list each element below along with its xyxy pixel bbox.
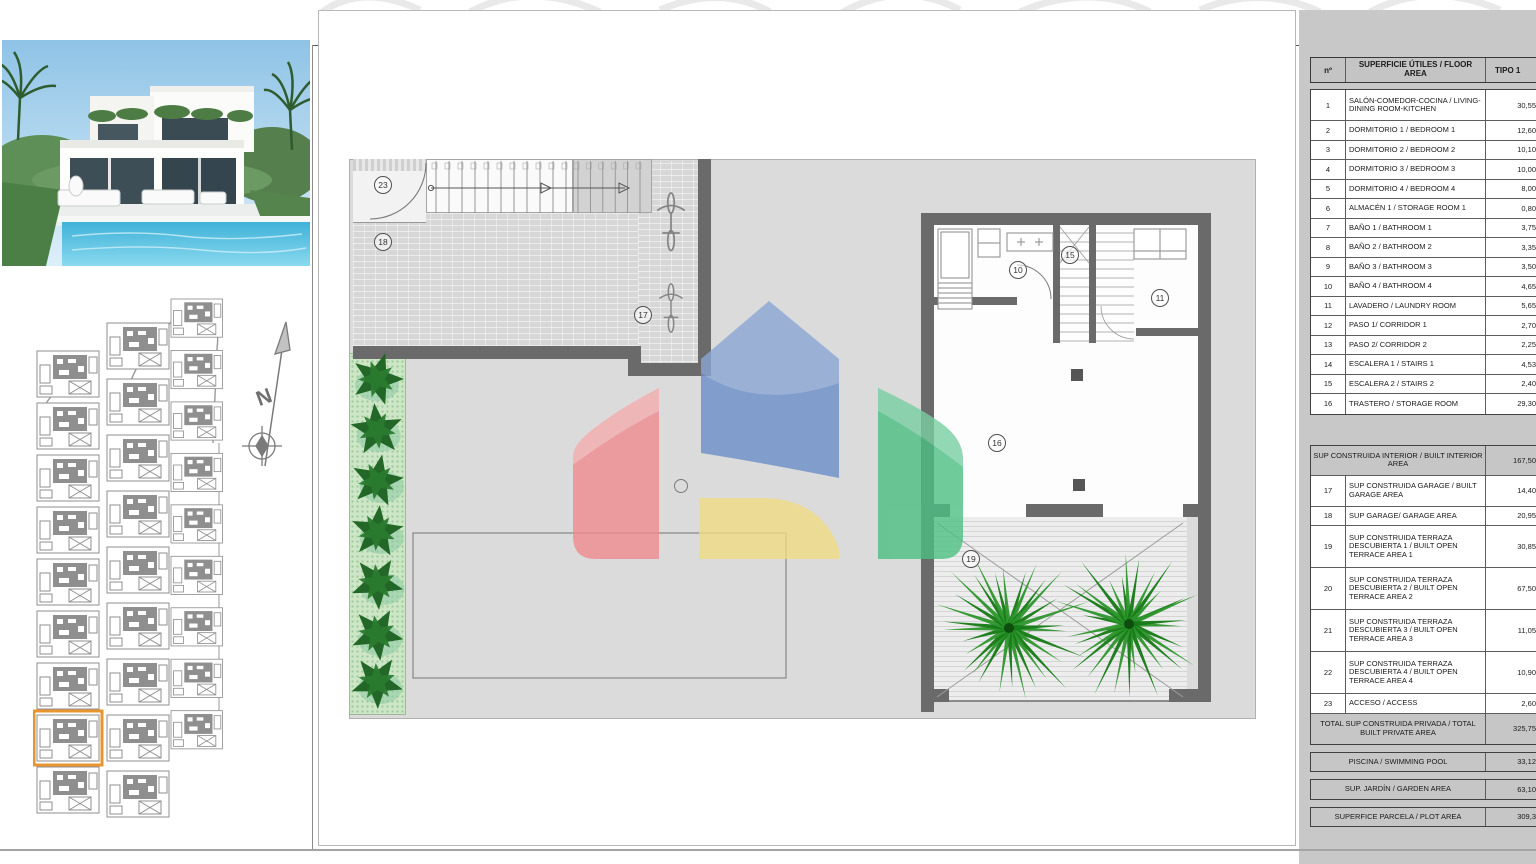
row-label: PASO 1/ CORRIDOR 1 <box>1346 316 1486 335</box>
wall <box>1053 225 1060 343</box>
row-value: 3,35 <box>1486 238 1536 257</box>
row-value: 30,85 <box>1486 526 1536 567</box>
marker-23: 23 <box>374 176 392 194</box>
header-area: SUPERFICIE ÚTILES / FLOOR AREA <box>1346 58 1486 82</box>
row-num: 21 <box>1311 610 1346 651</box>
marker-15: 15 <box>1061 246 1079 264</box>
table-row: 4DORMITORIO 3 / BEDROOM 310,00 <box>1311 160 1536 180</box>
table-row: 17SUP CONSTRUIDA GARAGE / BUILT GARAGE A… <box>1311 476 1536 507</box>
row-value: 10,00 <box>1486 160 1536 179</box>
summary-value: 33,12 <box>1486 753 1536 772</box>
table-row: 5DORMITORIO 4 / BEDROOM 48,00 <box>1311 180 1536 200</box>
wall <box>934 504 950 517</box>
table-row: 11LAVADERO / LAUNDRY ROOM5,65 <box>1311 297 1536 317</box>
row-num: 22 <box>1311 652 1346 693</box>
summary-value: 325,75 <box>1486 714 1536 744</box>
exterior-stairs-upper <box>573 159 652 213</box>
table-gap <box>1310 772 1536 779</box>
row-label: SALÓN-COMEDOR-COCINA / LIVING-DINING ROO… <box>1346 90 1486 120</box>
table-row: 19SUP CONSTRUIDA TERRAZA DESCUBIERTA 1 /… <box>1311 526 1536 568</box>
site-units <box>37 299 222 817</box>
row-value: 12,60 <box>1486 121 1536 140</box>
row-num: 9 <box>1311 258 1346 277</box>
summary-value: 63,10 <box>1486 780 1536 799</box>
marker-18: 18 <box>374 233 392 251</box>
north-arrow: N <box>240 318 300 480</box>
row-value: 20,95 <box>1486 507 1536 526</box>
wall <box>921 517 934 712</box>
summary-row: SUP. JARDÍN / GARDEN AREA63,10 <box>1311 780 1536 799</box>
row-num: 16 <box>1311 394 1346 414</box>
svg-text:N: N <box>253 384 275 411</box>
row-num: 18 <box>1311 507 1346 526</box>
row-num: 14 <box>1311 355 1346 374</box>
row-value: 2,70 <box>1486 316 1536 335</box>
table-block: SUP CONSTRUIDA INTERIOR / BUILT INTERIOR… <box>1310 445 1536 745</box>
table-header: nº SUPERFICIE ÚTILES / FLOOR AREA TIPO 1 <box>1310 57 1536 83</box>
row-value: 8,00 <box>1486 180 1536 199</box>
row-label: ESCALERA 1 / STAIRS 1 <box>1346 355 1486 374</box>
wall <box>638 363 704 376</box>
row-label: SUP GARAGE/ GARAGE AREA <box>1346 507 1486 526</box>
table-row: 22SUP CONSTRUIDA TERRAZA DESCUBIERTA 4 /… <box>1311 652 1536 694</box>
table-row: 14ESCALERA 1 / STAIRS 14,53 <box>1311 355 1536 375</box>
sheet-bottom-rule <box>0 849 1536 851</box>
row-label: DORMITORIO 3 / BEDROOM 3 <box>1346 160 1486 179</box>
table-row: 23ACCESO / ACCESS2,60 <box>1311 694 1536 714</box>
area-schedule-table: nº SUPERFICIE ÚTILES / FLOOR AREA TIPO 1… <box>1310 57 1536 827</box>
row-label: SUP CONSTRUIDA GARAGE / BUILT GARAGE ARE… <box>1346 476 1486 506</box>
row-label: BAÑO 1 / BATHROOM 1 <box>1346 219 1486 238</box>
site-key-plan <box>33 293 225 828</box>
row-num: 6 <box>1311 199 1346 218</box>
table-block: SUPERFICE PARCELA / PLOT AREA309,3 <box>1310 807 1536 828</box>
table-gap <box>1310 415 1536 445</box>
summary-row: SUPERFICE PARCELA / PLOT AREA309,3 <box>1311 808 1536 827</box>
header-num: nº <box>1311 58 1346 82</box>
row-value: 10,90 <box>1486 652 1536 693</box>
summary-label: SUP CONSTRUIDA INTERIOR / BUILT INTERIOR… <box>1311 446 1486 475</box>
row-num: 2 <box>1311 121 1346 140</box>
table-row: 18SUP GARAGE/ GARAGE AREA20,95 <box>1311 507 1536 527</box>
row-num: 15 <box>1311 375 1346 394</box>
wall <box>934 297 1017 305</box>
table-block: 1SALÓN-COMEDOR-COCINA / LIVING-DINING RO… <box>1310 89 1536 415</box>
table-gap <box>1310 745 1536 752</box>
row-label: PASO 2/ CORRIDOR 2 <box>1346 336 1486 355</box>
table-row: 21SUP CONSTRUIDA TERRAZA DESCUBIERTA 3 /… <box>1311 610 1536 652</box>
row-num: 7 <box>1311 219 1346 238</box>
row-label: SUP CONSTRUIDA TERRAZA DESCUBIERTA 3 / B… <box>1346 610 1486 651</box>
table-row: 16TRASTERO / STORAGE ROOM29,30 <box>1311 394 1536 414</box>
row-num: 11 <box>1311 297 1346 316</box>
row-value: 10,10 <box>1486 141 1536 160</box>
row-value: 3,50 <box>1486 258 1536 277</box>
row-num: 13 <box>1311 336 1346 355</box>
row-num: 12 <box>1311 316 1346 335</box>
table-gap <box>1310 800 1536 807</box>
row-value: 5,65 <box>1486 297 1536 316</box>
row-num: 3 <box>1311 141 1346 160</box>
row-value: 11,05 <box>1486 610 1536 651</box>
wall <box>1089 225 1096 343</box>
row-label: SUP CONSTRUIDA TERRAZA DESCUBIERTA 2 / B… <box>1346 568 1486 609</box>
summary-value: 167,50 <box>1486 446 1536 475</box>
building-interior <box>934 225 1198 517</box>
row-num: 8 <box>1311 238 1346 257</box>
table-row: 8BAÑO 2 / BATHROOM 23,35 <box>1311 238 1536 258</box>
row-label: ALMACÉN 1 / STORAGE ROOM 1 <box>1346 199 1486 218</box>
row-num: 23 <box>1311 694 1346 713</box>
row-label: ACCESO / ACCESS <box>1346 694 1486 713</box>
table-row: 3DORMITORIO 2 / BEDROOM 210,10 <box>1311 141 1536 161</box>
row-value: 4,65 <box>1486 277 1536 296</box>
exterior-stairs <box>426 159 573 213</box>
row-label: BAÑO 4 / BATHROOM 4 <box>1346 277 1486 296</box>
villa-photo <box>2 40 310 266</box>
marker-17: 17 <box>634 306 652 324</box>
wall <box>921 689 949 702</box>
summary-value: 309,3 <box>1486 808 1536 827</box>
wall <box>1136 328 1198 336</box>
table-block: PISCINA / SWIMMING POOL33,12 <box>1310 752 1536 773</box>
summary-label: SUP. JARDÍN / GARDEN AREA <box>1311 780 1486 799</box>
marker-19: 19 <box>962 550 980 568</box>
table-row: 6ALMACÉN 1 / STORAGE ROOM 10,80 <box>1311 199 1536 219</box>
row-value: 2,25 <box>1486 336 1536 355</box>
row-num: 17 <box>1311 476 1346 506</box>
compass-rose <box>242 426 282 466</box>
marker-11: 11 <box>1151 289 1169 307</box>
wall <box>698 159 711 376</box>
summary-row: TOTAL SUP CONSTRUIDA PRIVADA / TOTAL BUI… <box>1311 714 1536 744</box>
summary-label: SUPERFICE PARCELA / PLOT AREA <box>1311 808 1486 827</box>
terrace-decking <box>934 517 1187 702</box>
row-label: LAVADERO / LAUNDRY ROOM <box>1346 297 1486 316</box>
row-num: 19 <box>1311 526 1346 567</box>
wall <box>353 346 638 359</box>
marker-10: 10 <box>1009 261 1027 279</box>
row-label: DORMITORIO 2 / BEDROOM 2 <box>1346 141 1486 160</box>
row-label: DORMITORIO 4 / BEDROOM 4 <box>1346 180 1486 199</box>
row-num: 20 <box>1311 568 1346 609</box>
row-value: 2,60 <box>1486 694 1536 713</box>
garden-hedge <box>349 353 406 715</box>
table-block: SUP. JARDÍN / GARDEN AREA63,10 <box>1310 779 1536 800</box>
summary-label: TOTAL SUP CONSTRUIDA PRIVADA / TOTAL BUI… <box>1311 714 1486 744</box>
row-label: DORMITORIO 1 / BEDROOM 1 <box>1346 121 1486 140</box>
row-value: 4,53 <box>1486 355 1536 374</box>
column-divider <box>312 45 313 851</box>
table-row: 12PASO 1/ CORRIDOR 12,70 <box>1311 316 1536 336</box>
wall <box>1169 689 1211 702</box>
table-row: 13PASO 2/ CORRIDOR 22,25 <box>1311 336 1536 356</box>
floor-plan-frame: 23 18 17 10 15 11 16 19 <box>318 10 1296 846</box>
table-row: 20SUP CONSTRUIDA TERRAZA DESCUBIERTA 2 /… <box>1311 568 1536 610</box>
header-type: TIPO 1 <box>1486 58 1536 82</box>
wall <box>1198 213 1211 701</box>
area-schedule-panel: nº SUPERFICIE ÚTILES / FLOOR AREA TIPO 1… <box>1299 10 1536 864</box>
row-value: 0,80 <box>1486 199 1536 218</box>
row-value: 29,30 <box>1486 394 1536 414</box>
row-value: 67,50 <box>1486 568 1536 609</box>
marker-16: 16 <box>988 434 1006 452</box>
table-row: 1SALÓN-COMEDOR-COCINA / LIVING-DINING RO… <box>1311 90 1536 121</box>
summary-label: PISCINA / SWIMMING POOL <box>1311 753 1486 772</box>
row-value: 2,40 <box>1486 375 1536 394</box>
wall <box>1026 504 1103 517</box>
row-num: 5 <box>1311 180 1346 199</box>
drawing-sheet: N <box>0 0 1536 864</box>
summary-row: SUP CONSTRUIDA INTERIOR / BUILT INTERIOR… <box>1311 446 1536 476</box>
row-num: 10 <box>1311 277 1346 296</box>
row-label: SUP CONSTRUIDA TERRAZA DESCUBIERTA 4 / B… <box>1346 652 1486 693</box>
row-num: 4 <box>1311 160 1346 179</box>
row-num: 1 <box>1311 90 1346 120</box>
row-label: BAÑO 3 / BATHROOM 3 <box>1346 258 1486 277</box>
wall <box>1183 504 1211 517</box>
row-label: TRASTERO / STORAGE ROOM <box>1346 394 1486 414</box>
table-row: 2DORMITORIO 1 / BEDROOM 112,60 <box>1311 121 1536 141</box>
row-value: 14,40 <box>1486 476 1536 506</box>
row-value: 30,55 <box>1486 90 1536 120</box>
row-label: ESCALERA 2 / STAIRS 2 <box>1346 375 1486 394</box>
table-row: 10BAÑO 4 / BATHROOM 44,65 <box>1311 277 1536 297</box>
row-label: BAÑO 2 / BATHROOM 2 <box>1346 238 1486 257</box>
wall <box>921 213 934 517</box>
table-row: 9BAÑO 3 / BATHROOM 33,50 <box>1311 258 1536 278</box>
table-row: 15ESCALERA 2 / STAIRS 22,40 <box>1311 375 1536 395</box>
summary-row: PISCINA / SWIMMING POOL33,12 <box>1311 753 1536 772</box>
table-row: 7BAÑO 1 / BATHROOM 13,75 <box>1311 219 1536 239</box>
row-label: SUP CONSTRUIDA TERRAZA DESCUBIERTA 1 / B… <box>1346 526 1486 567</box>
wall <box>921 213 1211 225</box>
row-value: 3,75 <box>1486 219 1536 238</box>
